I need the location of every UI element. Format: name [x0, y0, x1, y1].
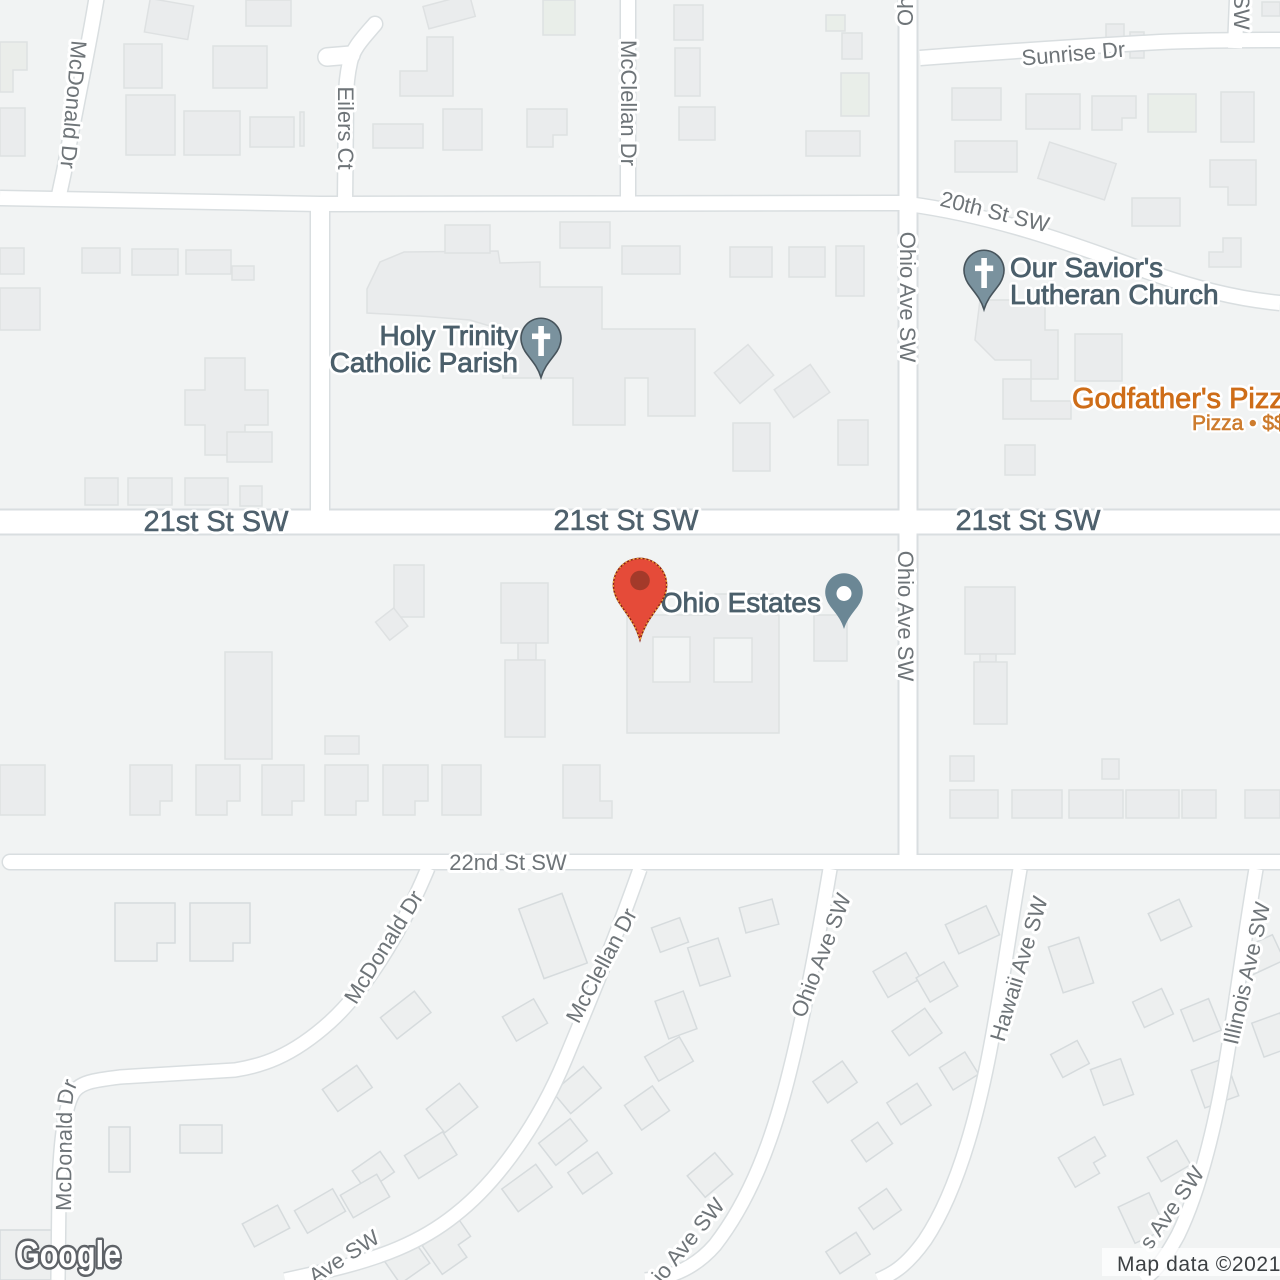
- svg-text:21st St SW: 21st St SW: [955, 505, 1101, 537]
- svg-text:Ohio Ave SW: Ohio Ave SW: [893, 0, 918, 26]
- svg-text:21st St SW: 21st St SW: [143, 506, 289, 538]
- svg-text:Lutheran Church: Lutheran Church: [1010, 279, 1219, 310]
- svg-text:McClellan Dr: McClellan Dr: [616, 40, 641, 166]
- svg-text:Godfather's Pizza: Godfather's Pizza: [1072, 383, 1280, 415]
- svg-text:Google: Google: [16, 1234, 121, 1275]
- svg-text:Ohio Ave SW: Ohio Ave SW: [895, 232, 920, 363]
- svg-text:22nd St SW: 22nd St SW: [449, 850, 567, 875]
- svg-text:Map data ©2021: Map data ©2021: [1117, 1253, 1280, 1276]
- svg-text:Ohio Ave SW: Ohio Ave SW: [893, 551, 918, 682]
- svg-text:Eilers Ct: Eilers Ct: [333, 86, 358, 169]
- svg-text:SW: SW: [1229, 0, 1254, 30]
- svg-text:21st St SW: 21st St SW: [553, 505, 699, 537]
- svg-text:Catholic Parish: Catholic Parish: [330, 347, 518, 378]
- svg-text:Pizza • $$$: Pizza • $$$: [1192, 412, 1280, 435]
- svg-text:Ohio Estates: Ohio Estates: [661, 587, 821, 618]
